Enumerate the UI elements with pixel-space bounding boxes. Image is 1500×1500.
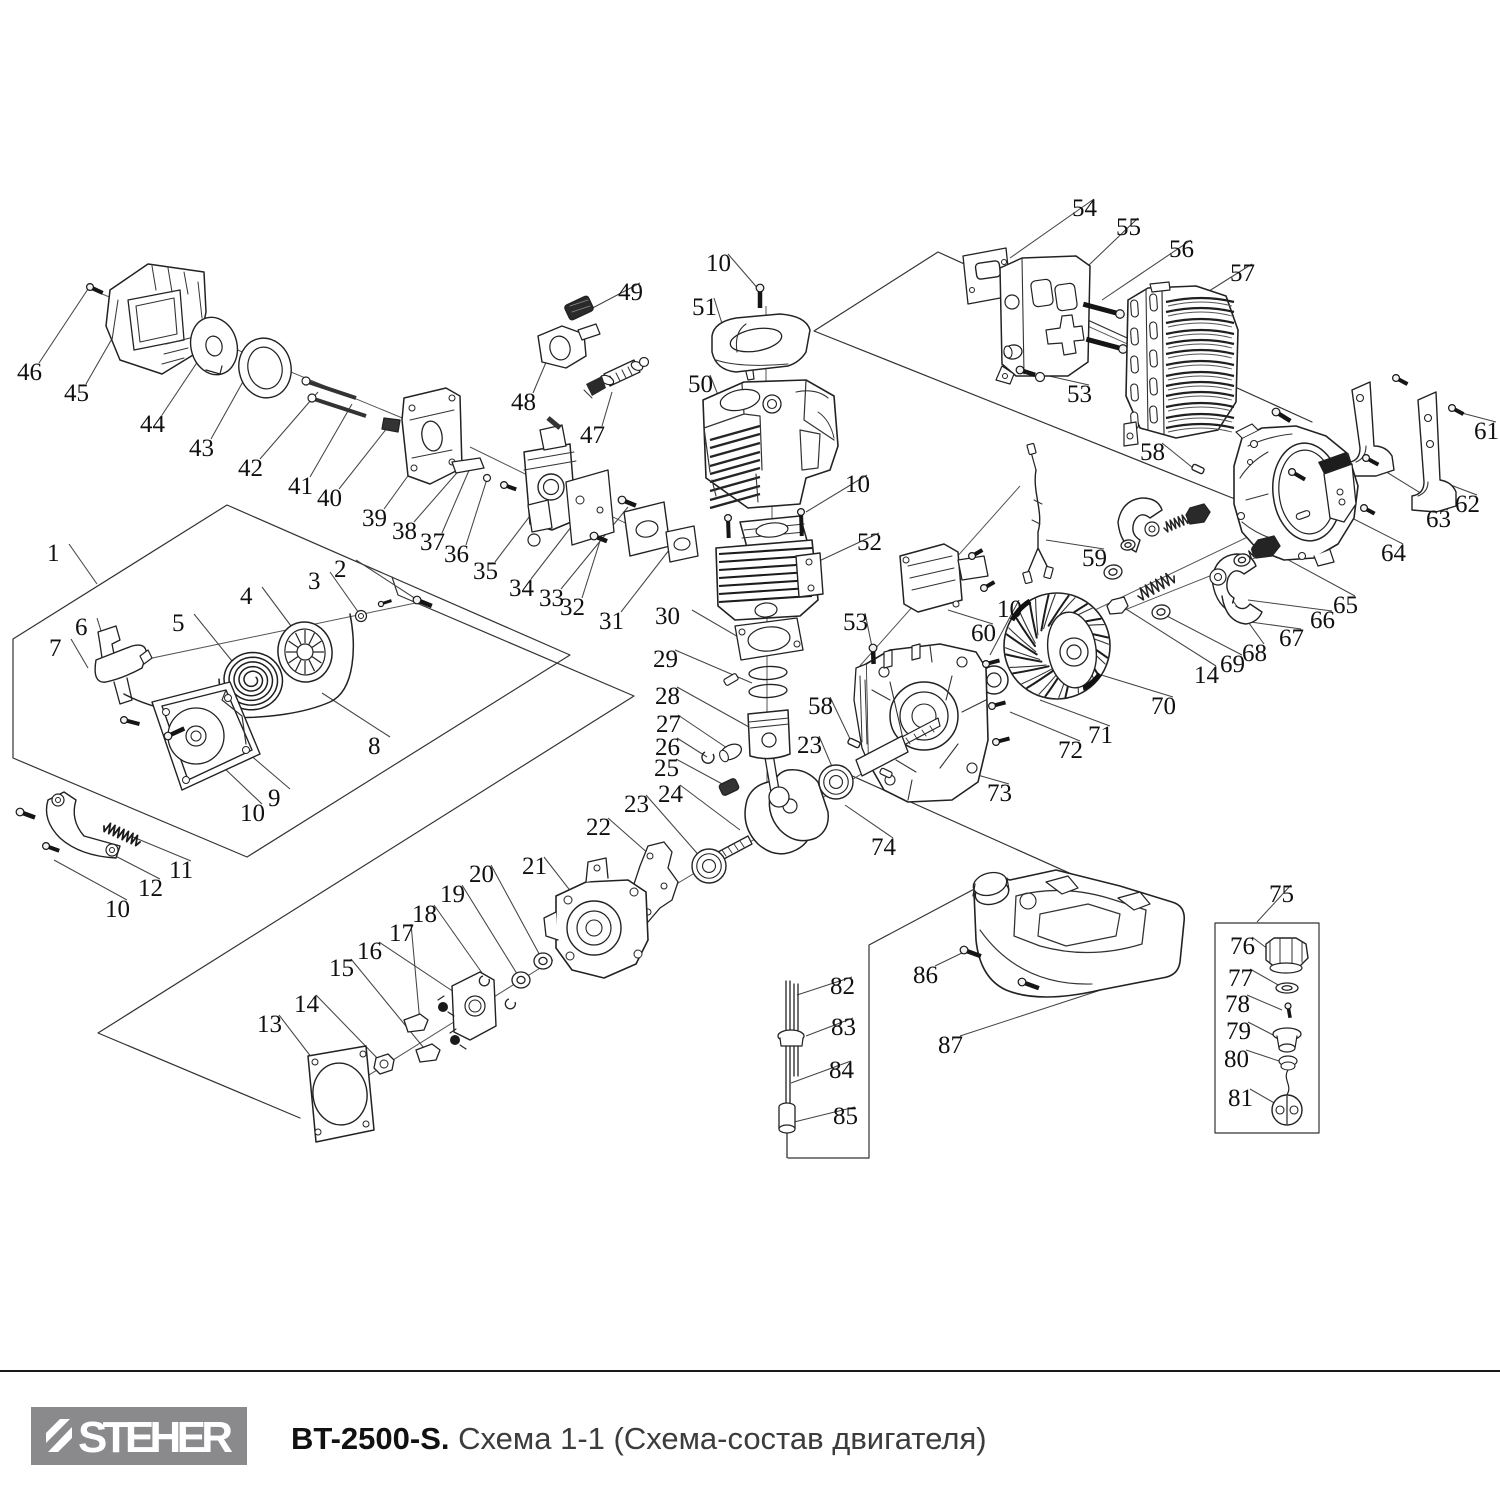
svg-text:23: 23 <box>624 791 649 818</box>
svg-text:42: 42 <box>238 455 263 482</box>
svg-text:84: 84 <box>829 1057 855 1084</box>
svg-text:85: 85 <box>833 1103 858 1130</box>
svg-text:29: 29 <box>653 646 678 673</box>
svg-text:69: 69 <box>1220 651 1245 678</box>
svg-text:18: 18 <box>412 901 437 928</box>
svg-text:51: 51 <box>692 294 717 321</box>
svg-text:53: 53 <box>843 609 868 636</box>
svg-text:57: 57 <box>1230 260 1255 287</box>
svg-text:81: 81 <box>1228 1085 1253 1112</box>
svg-text:16: 16 <box>357 938 382 965</box>
svg-text:75: 75 <box>1269 881 1294 908</box>
svg-text:35: 35 <box>473 558 498 585</box>
svg-text:60: 60 <box>971 620 996 647</box>
svg-text:58: 58 <box>808 693 833 720</box>
svg-text:10: 10 <box>706 250 731 277</box>
svg-text:49: 49 <box>618 279 643 306</box>
svg-text:20: 20 <box>469 861 494 888</box>
svg-text:76: 76 <box>1230 933 1255 960</box>
svg-text:53: 53 <box>1067 381 1092 408</box>
svg-text:36: 36 <box>444 541 469 568</box>
svg-text:64: 64 <box>1381 540 1407 567</box>
svg-text:74: 74 <box>871 834 897 861</box>
svg-text:22: 22 <box>586 814 611 841</box>
svg-text:38: 38 <box>392 518 417 545</box>
svg-text:8: 8 <box>368 733 381 760</box>
svg-text:4: 4 <box>240 583 253 610</box>
svg-text:5: 5 <box>172 610 185 637</box>
svg-text:6: 6 <box>75 614 88 641</box>
svg-text:7: 7 <box>49 635 62 662</box>
svg-text:10: 10 <box>997 596 1022 623</box>
svg-text:21: 21 <box>522 853 547 880</box>
svg-text:13: 13 <box>257 1011 282 1038</box>
svg-text:9: 9 <box>268 785 281 812</box>
svg-text:72: 72 <box>1058 737 1083 764</box>
svg-text:34: 34 <box>509 575 535 602</box>
svg-text:79: 79 <box>1226 1018 1251 1045</box>
svg-text:63: 63 <box>1426 506 1451 533</box>
svg-text:86: 86 <box>913 962 938 989</box>
svg-text:80: 80 <box>1224 1046 1249 1073</box>
svg-text:31: 31 <box>599 608 624 635</box>
svg-text:19: 19 <box>440 881 465 908</box>
svg-text:83: 83 <box>831 1014 856 1041</box>
svg-text:68: 68 <box>1242 640 1267 667</box>
svg-text:66: 66 <box>1310 607 1335 634</box>
svg-text:73: 73 <box>987 780 1012 807</box>
svg-text:14: 14 <box>1194 662 1220 689</box>
svg-text:43: 43 <box>189 435 214 462</box>
svg-text:48: 48 <box>511 389 536 416</box>
svg-text:15: 15 <box>329 955 354 982</box>
svg-text:2: 2 <box>334 556 347 583</box>
svg-text:37: 37 <box>420 529 445 556</box>
svg-text:65: 65 <box>1333 592 1358 619</box>
svg-text:17: 17 <box>389 920 414 947</box>
svg-text:50: 50 <box>688 371 713 398</box>
svg-text:BT-2500-S. Схема 1-1 (Схема-со: BT-2500-S. Схема 1-1 (Схема-состав двига… <box>291 1421 987 1456</box>
svg-text:41: 41 <box>288 473 313 500</box>
svg-text:STEHER: STEHER <box>78 1413 232 1462</box>
svg-text:33: 33 <box>539 585 564 612</box>
svg-text:59: 59 <box>1082 545 1107 572</box>
svg-text:27: 27 <box>656 711 681 738</box>
svg-text:55: 55 <box>1116 214 1141 241</box>
svg-text:1: 1 <box>47 540 60 567</box>
svg-text:67: 67 <box>1279 625 1304 652</box>
svg-text:62: 62 <box>1455 491 1480 518</box>
svg-text:39: 39 <box>362 505 387 532</box>
svg-text:54: 54 <box>1072 195 1098 222</box>
svg-text:77: 77 <box>1228 965 1253 992</box>
svg-text:46: 46 <box>17 359 42 386</box>
svg-text:40: 40 <box>317 485 342 512</box>
svg-text:23: 23 <box>797 732 822 759</box>
svg-text:47: 47 <box>580 422 605 449</box>
svg-text:28: 28 <box>655 683 680 710</box>
svg-text:11: 11 <box>169 857 193 884</box>
svg-text:70: 70 <box>1151 693 1176 720</box>
svg-text:44: 44 <box>140 411 166 438</box>
svg-text:30: 30 <box>655 603 680 630</box>
svg-text:58: 58 <box>1140 439 1165 466</box>
svg-text:26: 26 <box>655 734 680 761</box>
svg-text:10: 10 <box>105 896 130 923</box>
svg-text:87: 87 <box>938 1032 963 1059</box>
svg-text:24: 24 <box>658 781 684 808</box>
svg-text:45: 45 <box>64 380 89 407</box>
svg-text:78: 78 <box>1225 991 1250 1018</box>
svg-text:82: 82 <box>830 973 855 1000</box>
svg-text:52: 52 <box>857 529 882 556</box>
svg-text:10: 10 <box>845 471 870 498</box>
svg-text:10: 10 <box>240 800 265 827</box>
svg-text:56: 56 <box>1169 236 1194 263</box>
svg-text:12: 12 <box>138 875 163 902</box>
svg-text:14: 14 <box>294 991 320 1018</box>
svg-text:3: 3 <box>308 568 321 595</box>
svg-text:61: 61 <box>1474 418 1499 445</box>
svg-text:71: 71 <box>1088 722 1113 749</box>
